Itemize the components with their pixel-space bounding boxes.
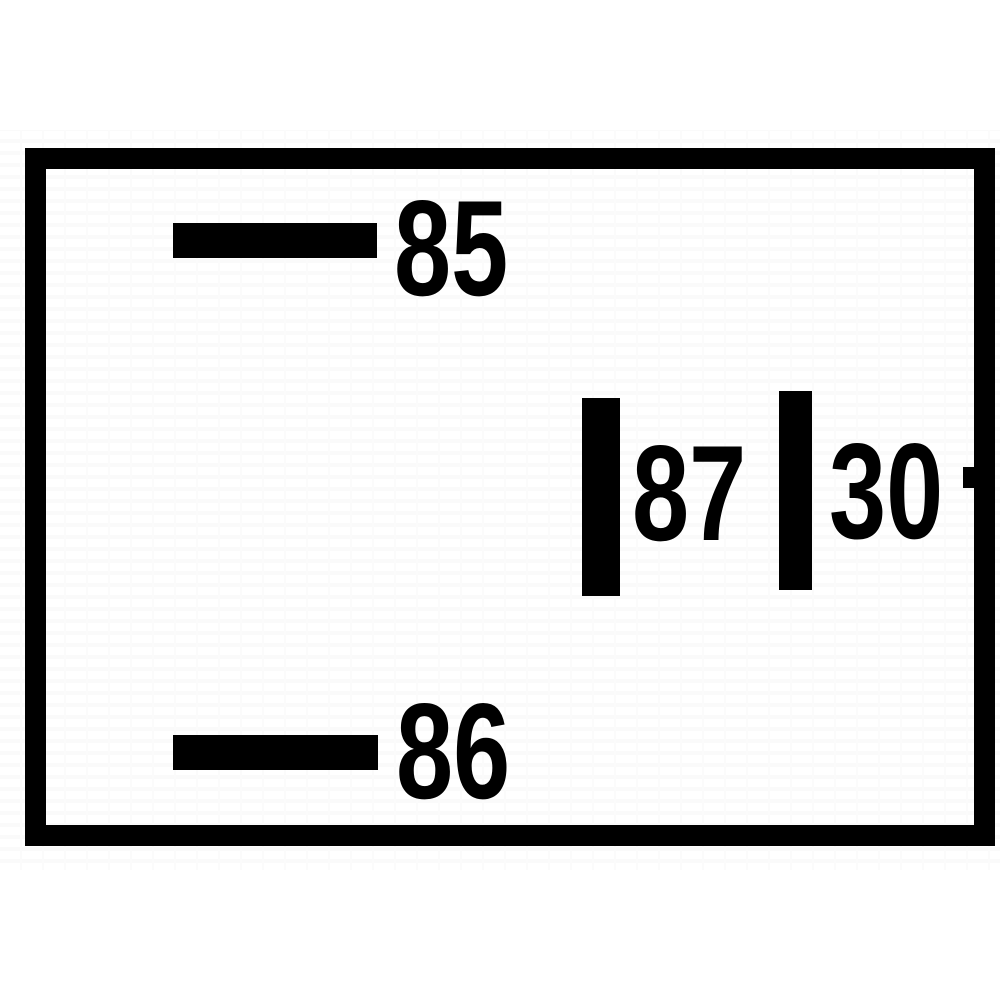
svg-text:30: 30 <box>829 415 943 567</box>
svg-text:85: 85 <box>394 172 508 324</box>
svg-text:87: 87 <box>632 417 746 569</box>
svg-text:86: 86 <box>396 675 510 827</box>
